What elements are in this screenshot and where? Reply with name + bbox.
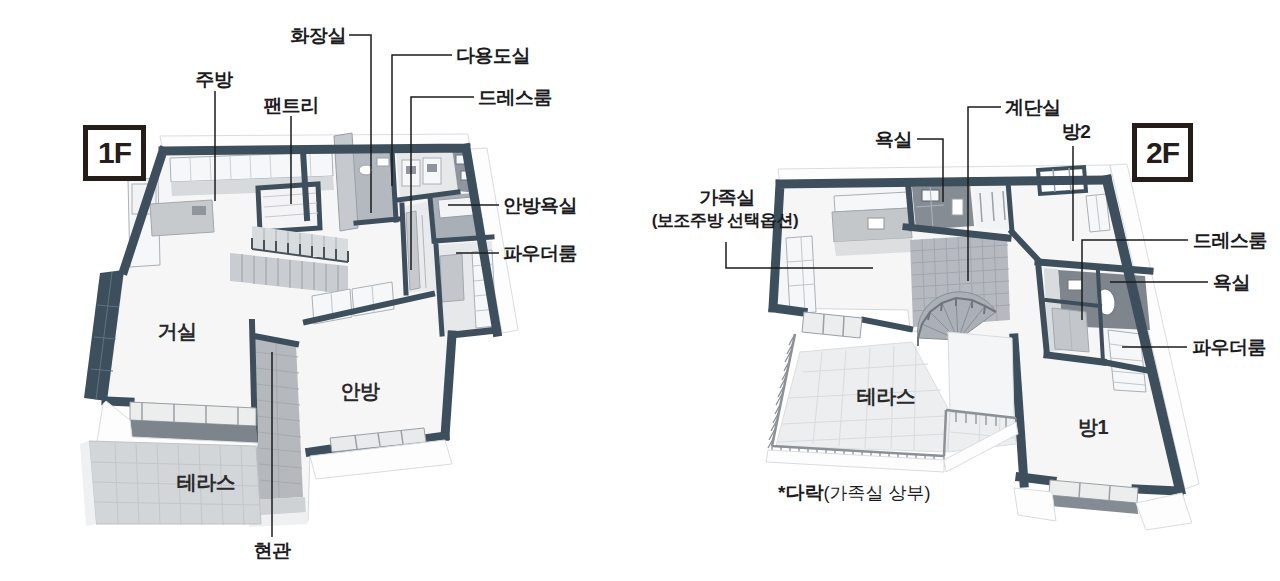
floorplan-rendering bbox=[0, 0, 1280, 581]
label-2f-bang1: 방1 bbox=[1078, 417, 1108, 437]
label-1f-dressroom: 드레스룸 bbox=[478, 88, 552, 107]
floorplan-page: 1F 2F 화장실 다용도실 드레스룸 주방 팬트리 안방욕실 파우더룸 거실 … bbox=[0, 0, 1280, 581]
label-1f-dayongdosil: 다용도실 bbox=[456, 46, 530, 65]
f1-pantry bbox=[258, 184, 320, 232]
label-2f-attic-note: *다락(가족실 상부) bbox=[778, 480, 930, 506]
label-1f-hwajangsil: 화장실 bbox=[291, 26, 347, 45]
label-2f-yoksil-top: 욕실 bbox=[875, 130, 912, 149]
label-2f-gyedansil: 계단실 bbox=[1005, 98, 1061, 117]
label-2f-gajoksil-option: (보조주방 선택옵션) bbox=[652, 212, 799, 229]
label-2f-dressroom: 드레스룸 bbox=[1193, 231, 1267, 250]
floor1-plan bbox=[80, 133, 518, 527]
sink-icon bbox=[192, 206, 206, 215]
label-1f-terrace: 테라스 bbox=[177, 472, 236, 492]
label-2f-gajoksil: 가족실 bbox=[699, 188, 755, 207]
attic-note-detail: (가족실 상부) bbox=[823, 483, 930, 503]
label-1f-geosil: 거실 bbox=[158, 321, 197, 341]
kitchen-island bbox=[150, 200, 214, 236]
f2-stair-hall bbox=[974, 182, 1011, 230]
sink-icon bbox=[868, 218, 884, 229]
bathtub-icon bbox=[438, 197, 474, 218]
label-2f-bang2: 방2 bbox=[1062, 122, 1091, 141]
label-1f-pantry: 팬트리 bbox=[263, 96, 319, 115]
family-tall-cabinet bbox=[786, 236, 816, 314]
label-2f-terrace: 테라스 bbox=[857, 386, 916, 406]
label-2f-powder: 파우더룸 bbox=[1192, 338, 1266, 357]
label-1f-anbang: 안방 bbox=[341, 381, 380, 401]
floor1-badge: 1F bbox=[83, 125, 146, 181]
floor2-badge: 2F bbox=[1132, 123, 1193, 182]
f1-outer-walls-step bbox=[452, 330, 497, 335]
basin-icon bbox=[1068, 280, 1082, 290]
label-1f-jubang: 주방 bbox=[196, 70, 233, 89]
basin-icon bbox=[377, 158, 389, 166]
label-1f-powder: 파우더룸 bbox=[503, 244, 577, 263]
label-1f-anbang-yoksil: 안방욕실 bbox=[503, 196, 577, 215]
attic-note-title: *다락 bbox=[778, 482, 823, 503]
label-2f-yoksil-side: 욕실 bbox=[1213, 273, 1250, 292]
f1-toilet-room bbox=[352, 150, 396, 223]
basin-icon bbox=[952, 199, 963, 215]
label-1f-hyeongwan: 현관 bbox=[254, 541, 291, 560]
f2-terrace-doors bbox=[802, 312, 862, 338]
